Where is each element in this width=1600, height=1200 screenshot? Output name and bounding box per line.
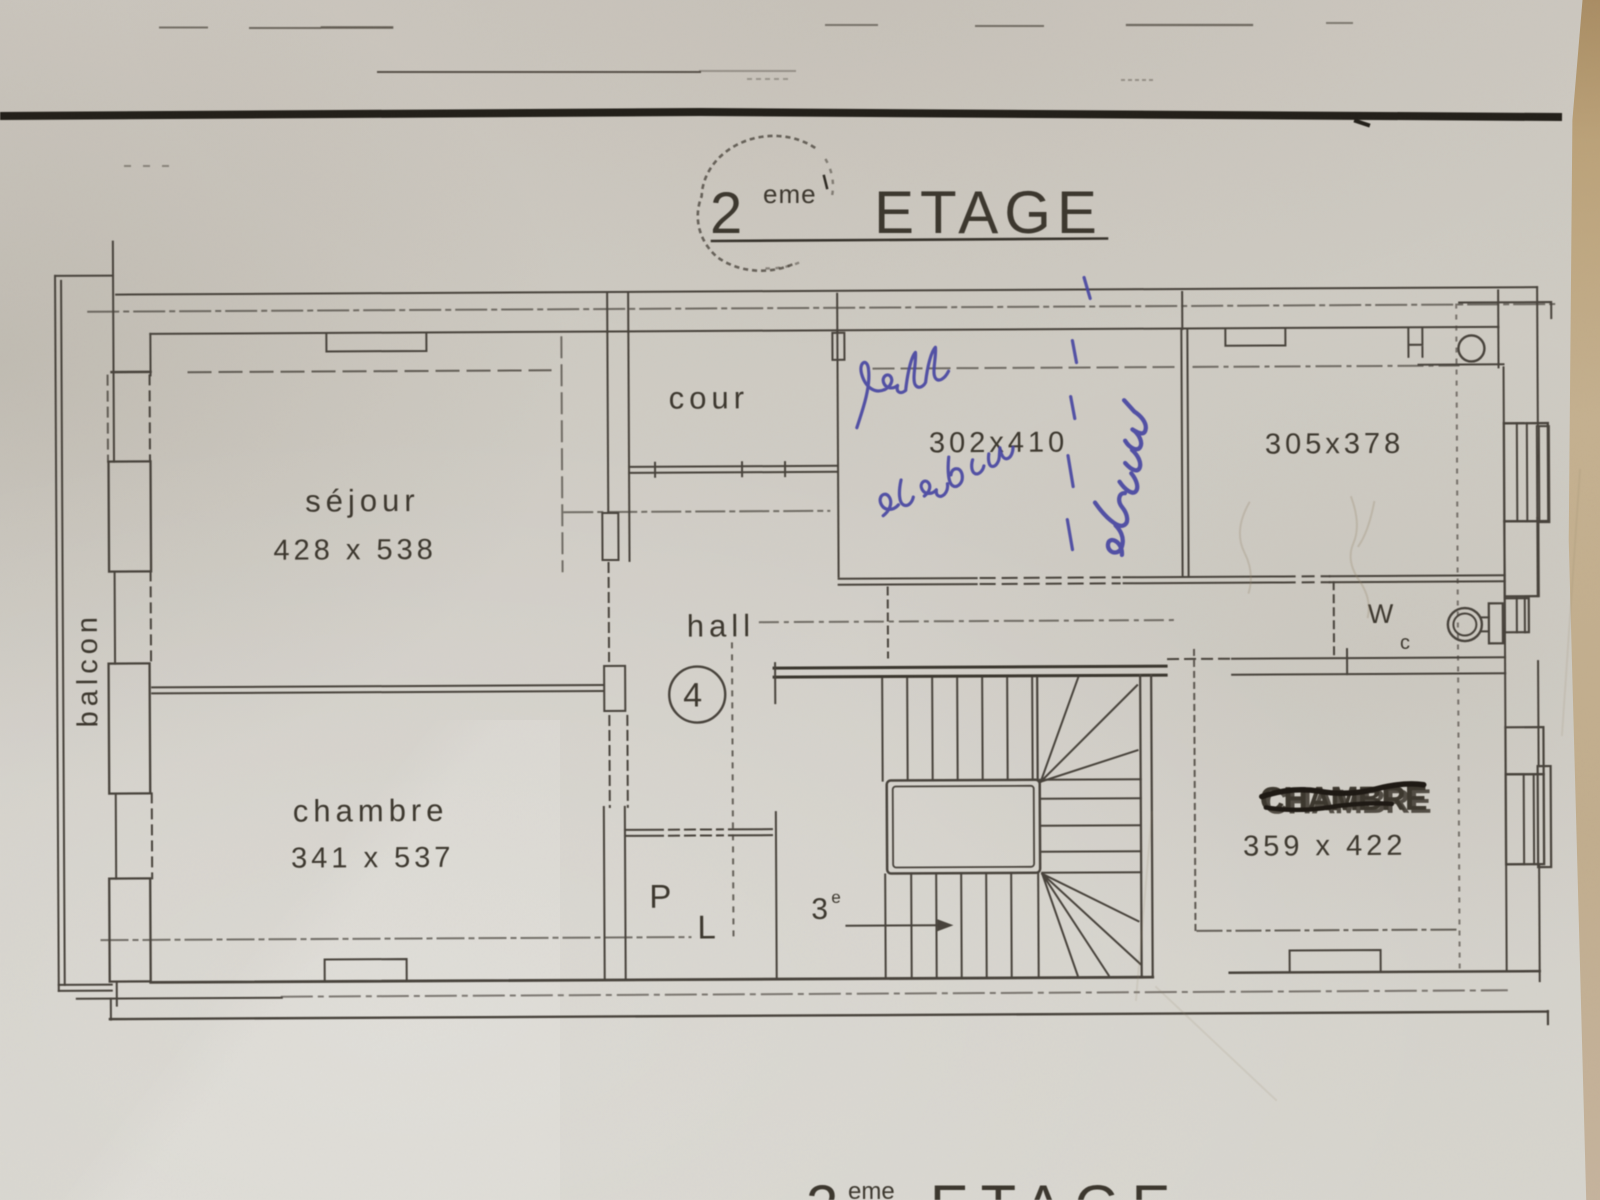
- svg-text:e: e: [831, 888, 841, 907]
- svg-text:ETAGE: ETAGE: [930, 1174, 1182, 1200]
- svg-text:c: c: [1400, 632, 1410, 654]
- svg-text:séjour: séjour: [305, 483, 420, 519]
- svg-text:428 x 538: 428 x 538: [273, 534, 437, 567]
- svg-text:341 x 537: 341 x 537: [291, 842, 455, 875]
- svg-text:W: W: [1368, 599, 1394, 629]
- svg-text:eme: eme: [763, 179, 817, 209]
- svg-text:359 x 422: 359 x 422: [1243, 830, 1407, 863]
- svg-text:3: 3: [811, 893, 828, 926]
- svg-text:eme: eme: [848, 1178, 895, 1200]
- svg-text:chambre: chambre: [293, 793, 449, 829]
- svg-text:hall: hall: [687, 608, 755, 643]
- svg-text:4: 4: [683, 677, 702, 715]
- svg-text:L: L: [697, 908, 716, 945]
- svg-text:2: 2: [710, 181, 742, 246]
- svg-text:2: 2: [806, 1174, 838, 1200]
- svg-text:305x378: 305x378: [1265, 428, 1404, 461]
- svg-text:balcon: balcon: [72, 612, 105, 728]
- svg-text:ETAGE: ETAGE: [874, 179, 1103, 246]
- svg-text:P: P: [649, 878, 671, 915]
- svg-text:cour: cour: [669, 380, 749, 415]
